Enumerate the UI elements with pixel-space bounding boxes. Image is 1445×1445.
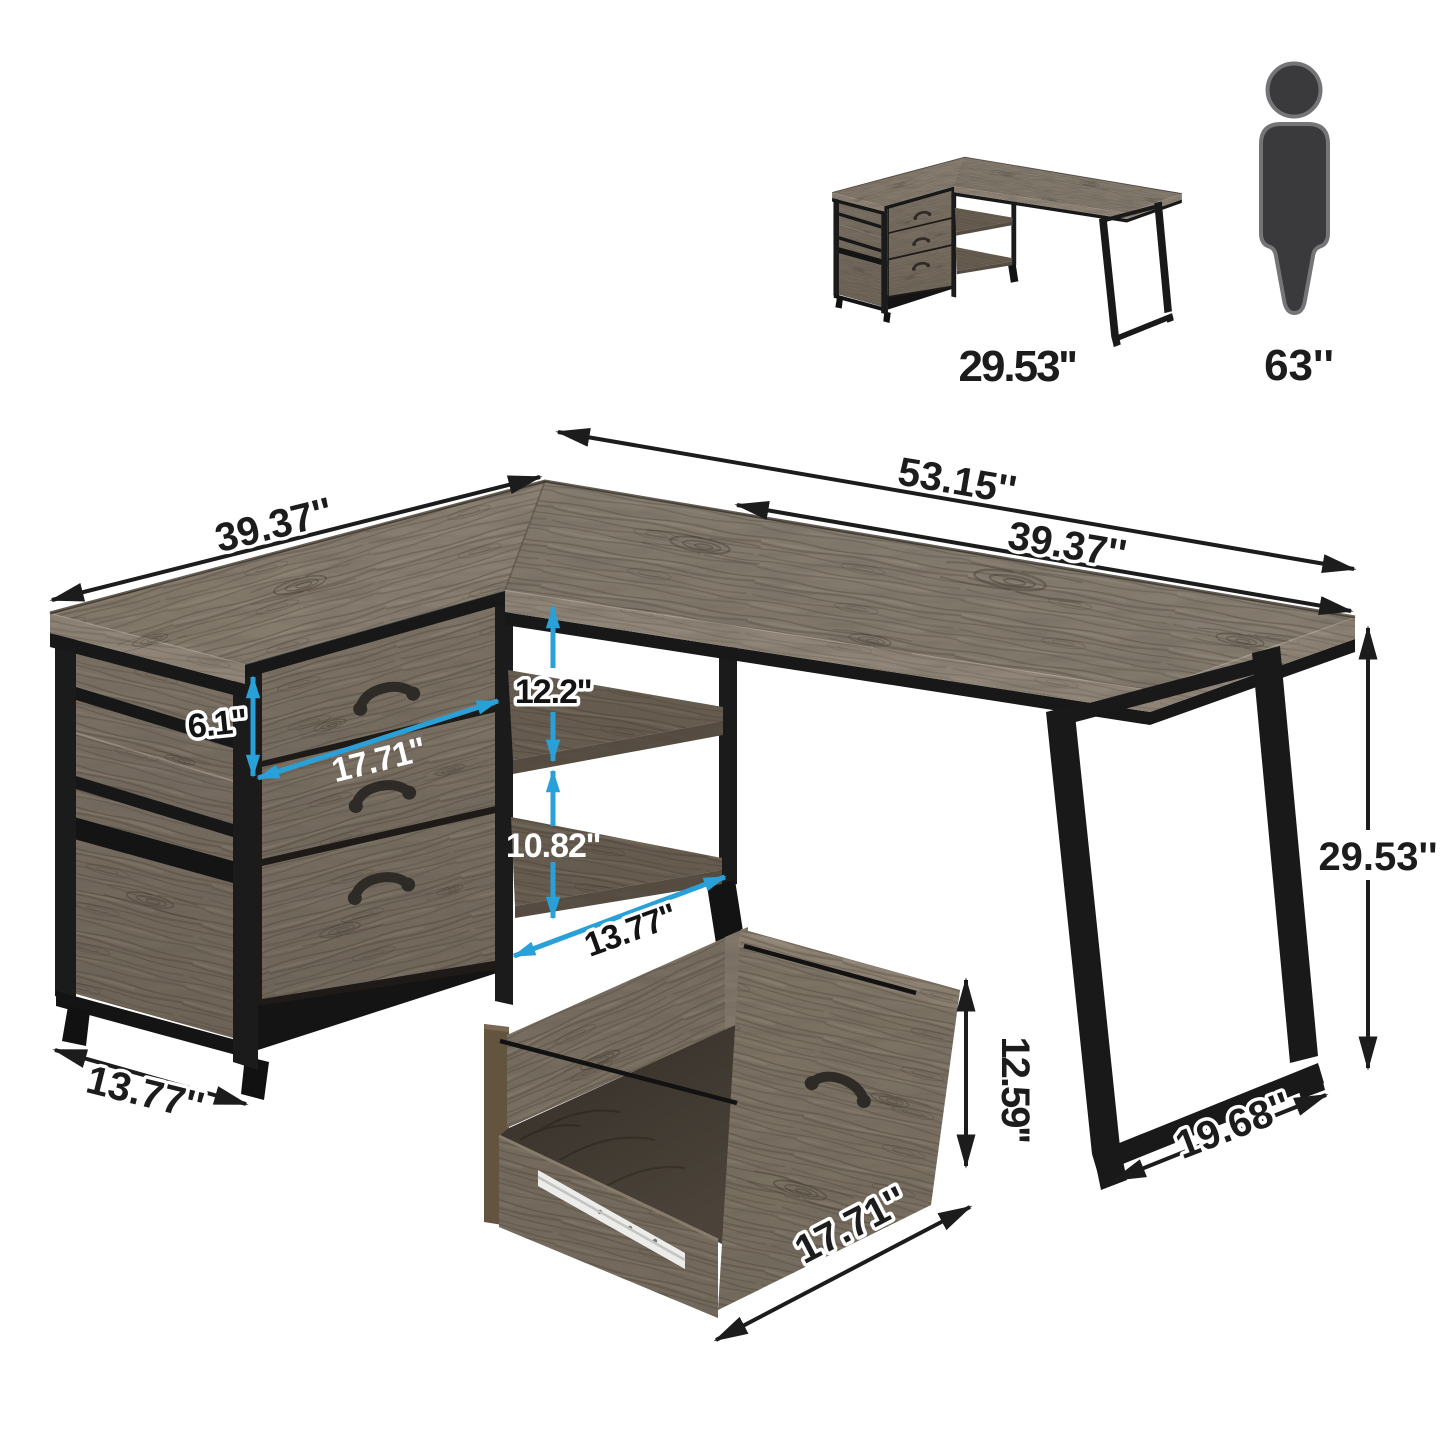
svg-text:6.1'': 6.1'' [186, 702, 248, 746]
svg-text:29.53'': 29.53'' [958, 342, 1076, 391]
svg-text:12.59'': 12.59'' [993, 1036, 1037, 1142]
svg-text:10.82'': 10.82'' [506, 827, 600, 865]
svg-text:29.53'': 29.53'' [1318, 835, 1437, 879]
svg-text:63'': 63'' [1264, 341, 1334, 390]
svg-text:12.2'': 12.2'' [515, 673, 591, 711]
